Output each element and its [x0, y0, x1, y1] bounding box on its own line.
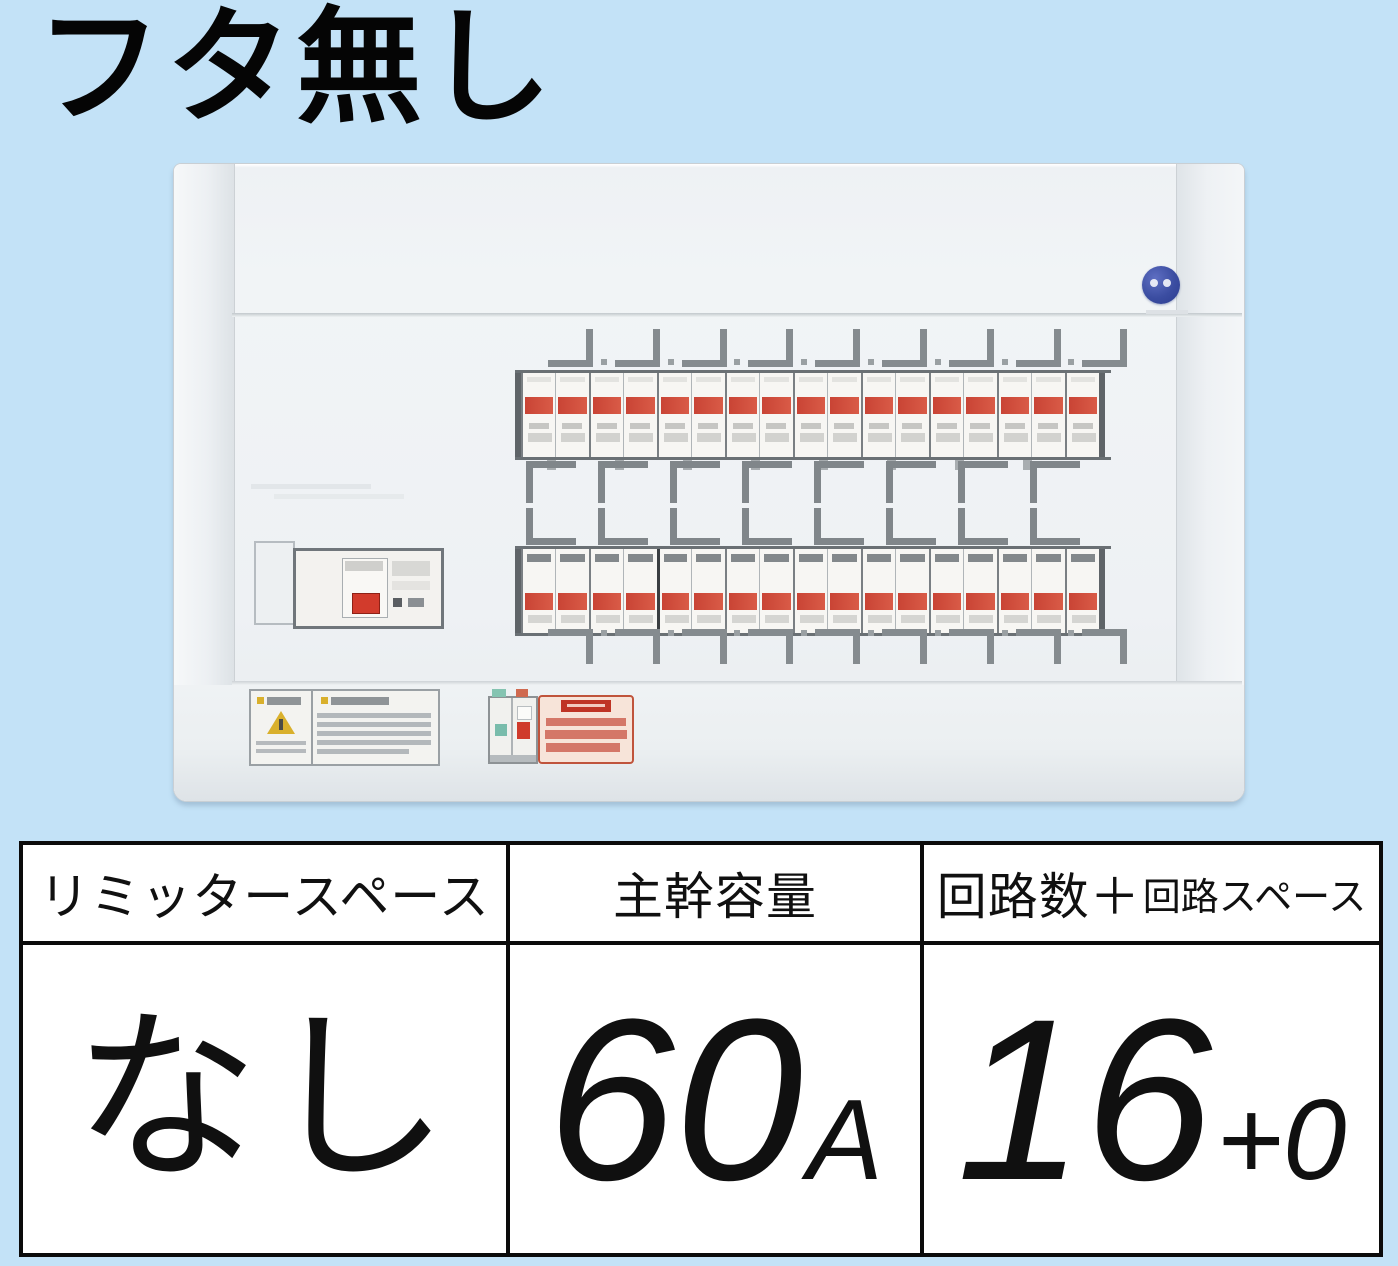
branch-breaker-module	[997, 549, 1031, 633]
caution-text-line	[317, 722, 431, 727]
branch-breaker-module	[521, 373, 555, 457]
module-label	[663, 377, 687, 382]
module-label	[968, 554, 993, 562]
module-red-band	[1001, 593, 1029, 610]
value-number: 16	[957, 996, 1213, 1203]
module-red-band	[933, 593, 961, 610]
caution-text-line	[317, 740, 431, 745]
wiring-hook	[720, 329, 727, 367]
branch-breaker-module	[793, 549, 827, 633]
module-mark	[665, 615, 689, 623]
module-mark	[629, 615, 653, 623]
module-label	[968, 377, 993, 382]
branch-breaker-module	[657, 373, 691, 457]
branch-breaker-module	[997, 373, 1031, 457]
module-label	[696, 554, 721, 562]
wiring-hook	[958, 461, 965, 503]
wiring-hook	[742, 461, 792, 468]
module-mark	[969, 615, 993, 623]
caution-heading	[331, 697, 389, 705]
module-red-band	[762, 397, 791, 414]
wiring-hook	[1120, 629, 1127, 664]
caution-icon	[321, 697, 328, 704]
value-extra: +0	[1216, 1090, 1346, 1193]
wiring-hook	[814, 538, 864, 545]
wiring-dot	[601, 630, 607, 636]
module-mark	[732, 433, 756, 442]
module-mark	[801, 423, 821, 429]
warning-icon	[257, 697, 264, 704]
module-red-band	[1069, 397, 1097, 414]
module-red-band	[558, 593, 587, 610]
module-label	[527, 554, 551, 562]
module-mark	[561, 433, 585, 442]
module-mark	[597, 423, 617, 429]
module-label	[900, 377, 925, 382]
module-red-band	[898, 593, 927, 610]
branch-breaker-module	[895, 373, 929, 457]
header-main-capacity: 主幹容量	[506, 845, 920, 945]
module-label	[1036, 377, 1061, 382]
header-text: リミッタースペース	[39, 857, 490, 929]
wiring-hook	[853, 329, 860, 367]
unit-divider	[511, 698, 513, 762]
branch-breaker-module	[861, 373, 895, 457]
module-mark	[936, 615, 960, 623]
wiring-dot	[868, 359, 874, 365]
module-red-band	[966, 397, 995, 414]
breaker-row-frame	[515, 457, 1111, 460]
module-red-band	[865, 397, 893, 414]
module-red-band	[593, 397, 621, 414]
wiring-hook	[886, 461, 936, 468]
module-mark	[698, 423, 718, 429]
unit-base	[490, 755, 536, 762]
module-label	[696, 377, 721, 382]
module-label	[628, 377, 653, 382]
wiring-hook	[853, 629, 860, 664]
caution-text-line	[317, 731, 431, 736]
teal-tab	[492, 689, 506, 697]
page-title: フタ無し	[36, 2, 556, 134]
module-label	[595, 554, 619, 562]
module-mark	[901, 615, 925, 623]
branch-breaker-module	[623, 373, 657, 457]
wiring-hook	[786, 629, 793, 664]
header-circuit-count: 回路数＋ 回路スペース	[920, 845, 1379, 945]
value-text: なし	[74, 1007, 456, 1192]
module-red-band	[933, 397, 961, 414]
module-red-band	[797, 593, 825, 610]
caution-text-line	[317, 713, 431, 718]
wiring-hook	[987, 329, 994, 367]
red-switch	[517, 722, 530, 739]
distribution-panel-photo	[173, 163, 1245, 802]
module-label	[731, 554, 755, 562]
module-mark	[697, 615, 721, 623]
wiring-hook	[742, 538, 792, 545]
module-mark	[901, 433, 925, 442]
module-mark	[833, 433, 857, 442]
module-label	[935, 554, 959, 562]
wiring-hook	[920, 629, 927, 664]
module-red-band	[729, 593, 757, 610]
module-mark	[596, 433, 620, 442]
module-red-band	[729, 397, 757, 414]
caution-sticker	[538, 695, 634, 764]
module-red-band	[966, 593, 995, 610]
wiring-dot	[668, 630, 674, 636]
module-label	[799, 554, 823, 562]
warning-heading	[267, 697, 301, 705]
module-label	[628, 554, 653, 562]
module-red-band	[694, 593, 723, 610]
module-mark	[1037, 615, 1061, 623]
wiring-hook	[1030, 461, 1037, 503]
module-mark	[936, 433, 960, 442]
branch-breaker-module	[1031, 373, 1065, 457]
wiring-dot	[801, 359, 807, 365]
module-mark	[1073, 423, 1093, 429]
module-label	[832, 377, 857, 382]
module-mark	[1072, 433, 1096, 442]
module-label	[1003, 377, 1027, 382]
module-label	[1036, 554, 1061, 562]
wiring-hook	[814, 461, 821, 503]
header-text-main: 回路数＋	[937, 857, 1141, 929]
wiring-hook	[958, 461, 1008, 468]
module-mark	[664, 433, 688, 442]
wiring-hook	[1030, 538, 1080, 545]
module-label	[867, 554, 891, 562]
module-mark	[629, 433, 653, 442]
sticker-text-line	[546, 743, 620, 752]
branch-breaker-module	[657, 549, 691, 633]
wiring-hook	[598, 461, 648, 468]
sticker-text-line	[546, 718, 626, 726]
header-text: 主幹容量	[613, 857, 817, 929]
module-mark	[765, 615, 789, 623]
module-label	[764, 554, 789, 562]
module-mark	[868, 615, 892, 623]
module-mark	[765, 433, 789, 442]
module-label	[1003, 554, 1027, 562]
module-label	[595, 377, 619, 382]
module-mark	[562, 423, 582, 429]
value-number: 60	[547, 996, 803, 1203]
branch-breaker-module	[725, 373, 759, 457]
wiring-hook	[886, 538, 936, 545]
module-red-band	[593, 593, 621, 610]
module-mark	[834, 423, 854, 429]
wiring-dot	[601, 359, 607, 365]
module-red-band	[1001, 397, 1029, 414]
module-mark	[833, 615, 857, 623]
branch-breaker-module	[1065, 549, 1099, 633]
header-limiter-space: リミッタースペース	[23, 845, 506, 945]
wiring-dot	[801, 630, 807, 636]
branch-breaker-module	[691, 549, 725, 633]
branch-breaker-module	[793, 373, 827, 457]
module-mark	[529, 423, 549, 429]
header-text-sub: 回路スペース	[1143, 866, 1366, 921]
branch-breaker-module	[861, 549, 895, 633]
spec-table: リミッタースペース 主幹容量 回路数＋ 回路スペース なし 60A 16+0	[19, 841, 1383, 1257]
module-mark	[937, 423, 957, 429]
module-mark	[1005, 423, 1025, 429]
module-mark	[733, 423, 753, 429]
warning-triangle-icon	[267, 711, 295, 734]
branch-breaker-module	[759, 549, 793, 633]
switch-handle	[517, 706, 532, 720]
branch-breaker-module	[589, 549, 623, 633]
module-mark	[528, 615, 552, 623]
breaker-row-endpost	[1099, 549, 1105, 633]
branch-breaker-module	[725, 549, 759, 633]
wiring-hook	[886, 461, 893, 503]
wiring-hook	[670, 461, 677, 503]
module-red-band	[662, 593, 689, 610]
test-breaker-unit	[488, 696, 538, 764]
branch-breaker-module	[827, 549, 861, 633]
wiring-dot	[1068, 359, 1074, 365]
module-mark	[1037, 433, 1061, 442]
branch-breaker-module	[623, 549, 657, 633]
branch-breaker-module	[1065, 373, 1099, 457]
product-card: フタ無し	[0, 0, 1398, 1266]
wiring-dot	[668, 359, 674, 365]
module-label	[1071, 554, 1095, 562]
module-red-band	[525, 397, 553, 414]
wiring-dot	[1002, 630, 1008, 636]
module-red-band	[1034, 593, 1063, 610]
module-mark	[902, 423, 922, 429]
module-label	[867, 377, 891, 382]
module-mark	[1004, 433, 1028, 442]
wiring-hook	[670, 461, 720, 468]
branch-breaker-module	[963, 373, 997, 457]
branch-breaker-module	[555, 373, 589, 457]
branch-breaker-module	[1031, 549, 1065, 633]
module-mark	[800, 615, 824, 623]
module-red-band	[830, 593, 859, 610]
wiring-hook	[814, 461, 864, 468]
wiring-hook	[987, 629, 994, 664]
wiring-hook	[526, 461, 576, 468]
module-mark	[766, 423, 786, 429]
wiring-hook	[526, 461, 533, 503]
wiring-hook	[786, 329, 793, 367]
branch-breaker-module	[589, 373, 623, 457]
value-circuit-count: 16+0	[920, 945, 1379, 1253]
label-divider	[311, 691, 313, 764]
wiring-dot	[1068, 630, 1074, 636]
branch-breaker-module	[827, 373, 861, 457]
branch-breaker-module	[929, 373, 963, 457]
module-mark	[869, 423, 889, 429]
module-red-band	[626, 397, 655, 414]
module-label	[799, 377, 823, 382]
module-mark	[630, 423, 650, 429]
module-red-band	[626, 593, 655, 610]
module-label	[731, 377, 755, 382]
module-mark	[697, 433, 721, 442]
sticker-text-line	[545, 730, 627, 739]
module-label	[527, 377, 551, 382]
wiring-hook	[958, 538, 1008, 545]
warning-text-line	[256, 741, 306, 745]
wiring-dot	[935, 630, 941, 636]
wiring-hook	[653, 329, 660, 367]
module-red-band	[558, 397, 587, 414]
module-red-band	[525, 593, 553, 610]
module-mark	[665, 423, 685, 429]
module-label	[1071, 377, 1095, 382]
wiring-hook	[1120, 329, 1127, 367]
branch-breaker-module	[895, 549, 929, 633]
module-red-band	[762, 593, 791, 610]
module-label	[560, 377, 585, 382]
module-mark	[970, 423, 990, 429]
module-red-band	[1034, 397, 1063, 414]
branch-breaker-module	[759, 373, 793, 457]
module-mark	[596, 615, 620, 623]
wiring-hook	[742, 461, 749, 503]
branch-breaker-module	[521, 549, 555, 633]
module-mark	[732, 615, 756, 623]
warning-text-line	[256, 749, 306, 753]
wiring-hook	[1054, 329, 1061, 367]
sticker-title-block	[561, 700, 611, 712]
module-red-band	[797, 397, 825, 414]
branch-breaker-module	[963, 549, 997, 633]
module-red-band	[694, 397, 723, 414]
red-tab	[516, 689, 528, 697]
value-unit: A	[807, 1090, 883, 1193]
warning-label	[249, 689, 440, 766]
module-mark	[1072, 615, 1096, 623]
branch-breaker-module	[691, 373, 725, 457]
value-main-capacity: 60A	[506, 945, 920, 1253]
module-red-band	[865, 593, 893, 610]
wiring-dot	[734, 630, 740, 636]
wiring-dot	[1002, 359, 1008, 365]
value-limiter-space: なし	[23, 945, 506, 1253]
wiring-hook	[598, 461, 605, 503]
wiring-hook	[586, 629, 593, 664]
breaker-row-endpost	[1099, 373, 1105, 457]
wiring-hook	[598, 538, 648, 545]
wiring-dot	[734, 359, 740, 365]
module-mark	[1038, 423, 1058, 429]
wiring-dot	[868, 630, 874, 636]
wiring-hook	[586, 329, 593, 367]
wiring-hook	[1030, 461, 1080, 468]
module-red-band	[898, 397, 927, 414]
module-mark	[800, 433, 824, 442]
module-label	[764, 377, 789, 382]
wiring-hook	[670, 538, 720, 545]
wiring-hook	[653, 629, 660, 664]
caution-text-line	[317, 749, 409, 754]
branch-breaker-module	[929, 549, 963, 633]
wiring-hook	[720, 629, 727, 664]
module-red-band	[1069, 593, 1097, 610]
module-label	[900, 554, 925, 562]
module-mark	[528, 433, 552, 442]
module-red-band	[661, 397, 689, 414]
module-mark	[1004, 615, 1028, 623]
module-label	[560, 554, 585, 562]
wiring-dot	[935, 359, 941, 365]
module-mark	[969, 433, 993, 442]
module-label	[832, 554, 857, 562]
wiring-hook	[526, 538, 576, 545]
module-red-band	[830, 397, 859, 414]
branch-breaker-module	[555, 549, 589, 633]
wiring-hook	[920, 329, 927, 367]
module-label	[664, 554, 687, 562]
wiring-hook	[1054, 629, 1061, 664]
teal-button	[495, 724, 507, 736]
module-label	[935, 377, 959, 382]
module-mark	[868, 433, 892, 442]
module-mark	[561, 615, 585, 623]
